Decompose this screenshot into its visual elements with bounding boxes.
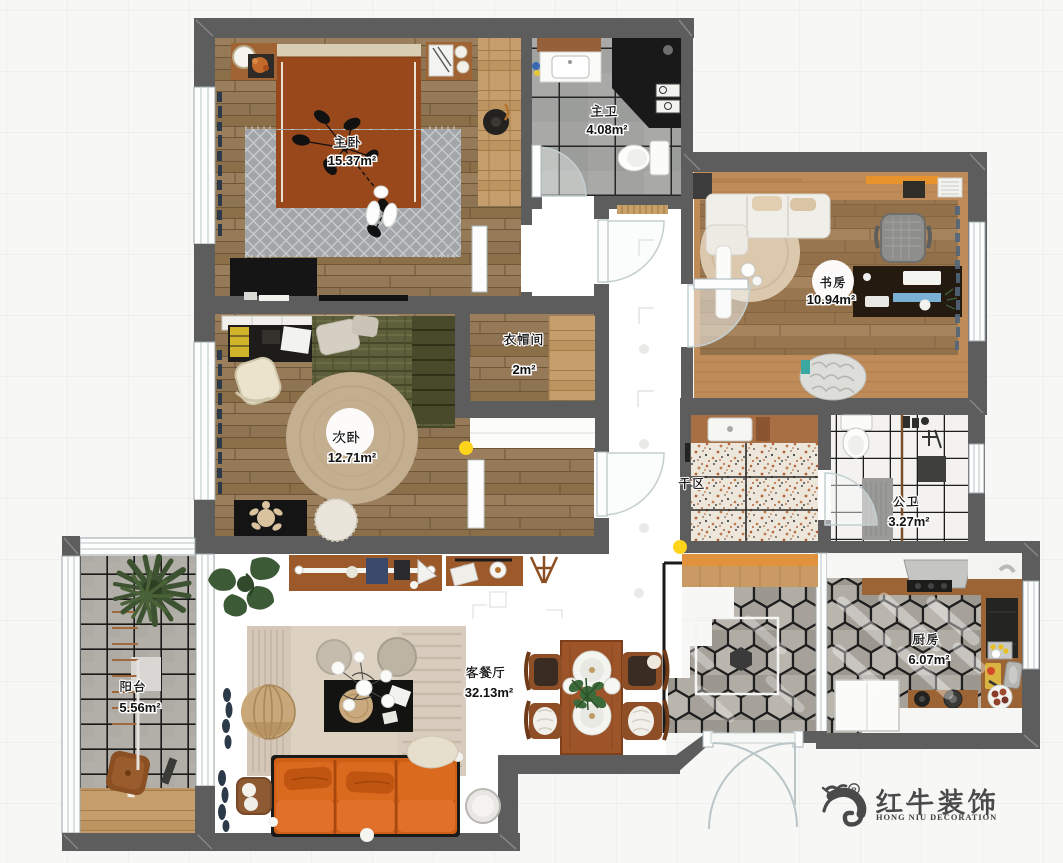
svg-text:R: R (851, 785, 857, 794)
svg-text:6.07m²: 6.07m² (908, 652, 950, 667)
svg-text:HONG NIU DECORATION: HONG NIU DECORATION (876, 813, 997, 822)
svg-text:5.56m²: 5.56m² (119, 700, 161, 715)
svg-text:2m²: 2m² (512, 362, 536, 377)
svg-text:15.37m²: 15.37m² (328, 153, 377, 168)
svg-text:3.27m²: 3.27m² (888, 514, 930, 529)
svg-text:4.08m²: 4.08m² (586, 122, 628, 137)
svg-text:10.94m²: 10.94m² (807, 292, 856, 307)
svg-text:32.13m²: 32.13m² (465, 685, 514, 700)
svg-text:12.71m²: 12.71m² (328, 450, 377, 465)
